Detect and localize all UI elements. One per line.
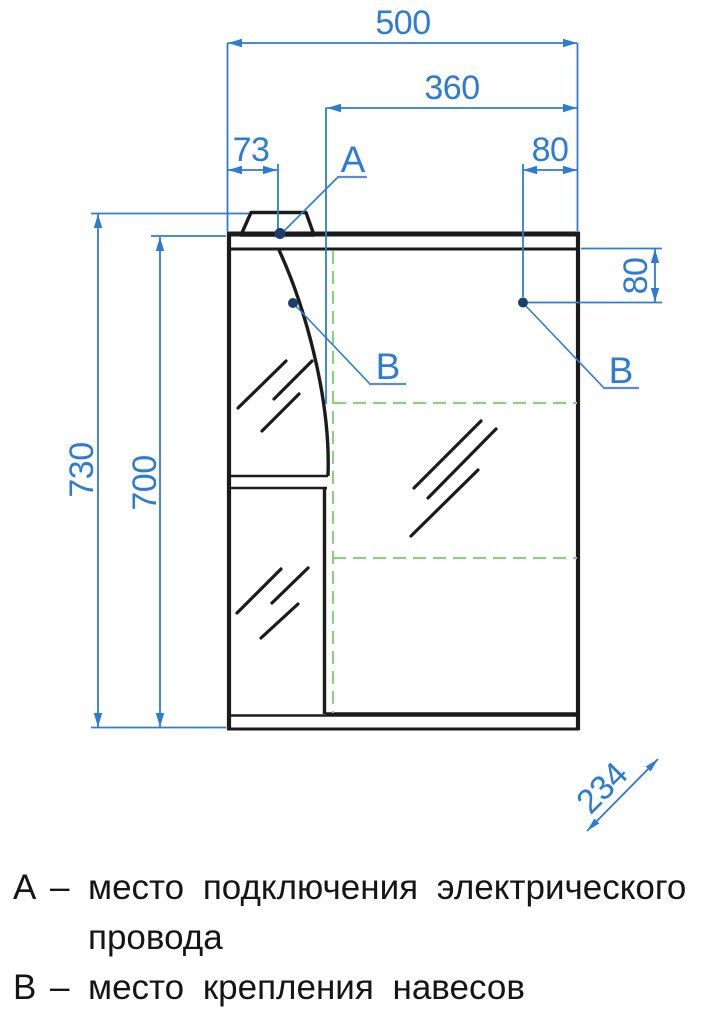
dimension-body-height: 700	[91, 236, 226, 728]
label-b-right-text: В	[609, 350, 634, 391]
dimension-left-offset-value: 73	[233, 131, 270, 169]
technical-drawing: 500 360 73 80	[0, 0, 726, 860]
glass-hatch-lower-door	[237, 568, 308, 638]
dimension-total-height-value: 730	[63, 442, 101, 497]
dimension-right-offset: 80	[523, 131, 577, 297]
label-b-left: В	[288, 298, 406, 387]
dimension-right-vertical-offset-value: 80	[617, 258, 655, 295]
label-b-left-text: В	[376, 346, 401, 387]
dimension-right-offset-value: 80	[532, 131, 569, 169]
dimension-right-vertical-offset: 80	[528, 249, 662, 303]
point-b-left-marker	[288, 298, 298, 308]
point-a-marker	[275, 228, 286, 239]
legend-key-a: А	[13, 863, 50, 913]
legend-dash: –	[50, 963, 88, 1013]
dimension-total-width-value: 500	[375, 4, 430, 42]
label-a: А	[275, 139, 368, 239]
dimension-mirror-width-value: 360	[424, 69, 479, 107]
glass-hatch-mirror	[411, 421, 496, 536]
legend-item-b: В – место крепления навесов	[0, 963, 726, 1013]
legend-text-a: место подключения электрического провода	[88, 863, 720, 963]
cabinet-technical-drawing-page: 500 360 73 80	[0, 0, 726, 1023]
legend-text-b: место крепления навесов	[88, 963, 720, 1013]
legend-dash: –	[50, 863, 88, 913]
dimension-total-width: 500	[228, 4, 578, 232]
legend-item-a: А – место подключения электрического про…	[0, 863, 726, 963]
legend: А – место подключения электрического про…	[0, 863, 726, 1013]
legend-key-b: В	[13, 963, 50, 1013]
dimension-depth: 234	[569, 755, 658, 831]
label-a-text: А	[341, 139, 366, 180]
glass-hatch-upper-door	[238, 361, 312, 431]
dimension-body-height-value: 700	[126, 455, 164, 510]
left-door	[229, 250, 328, 714]
point-b-right-marker	[518, 298, 528, 308]
dimension-depth-value: 234	[569, 755, 635, 821]
